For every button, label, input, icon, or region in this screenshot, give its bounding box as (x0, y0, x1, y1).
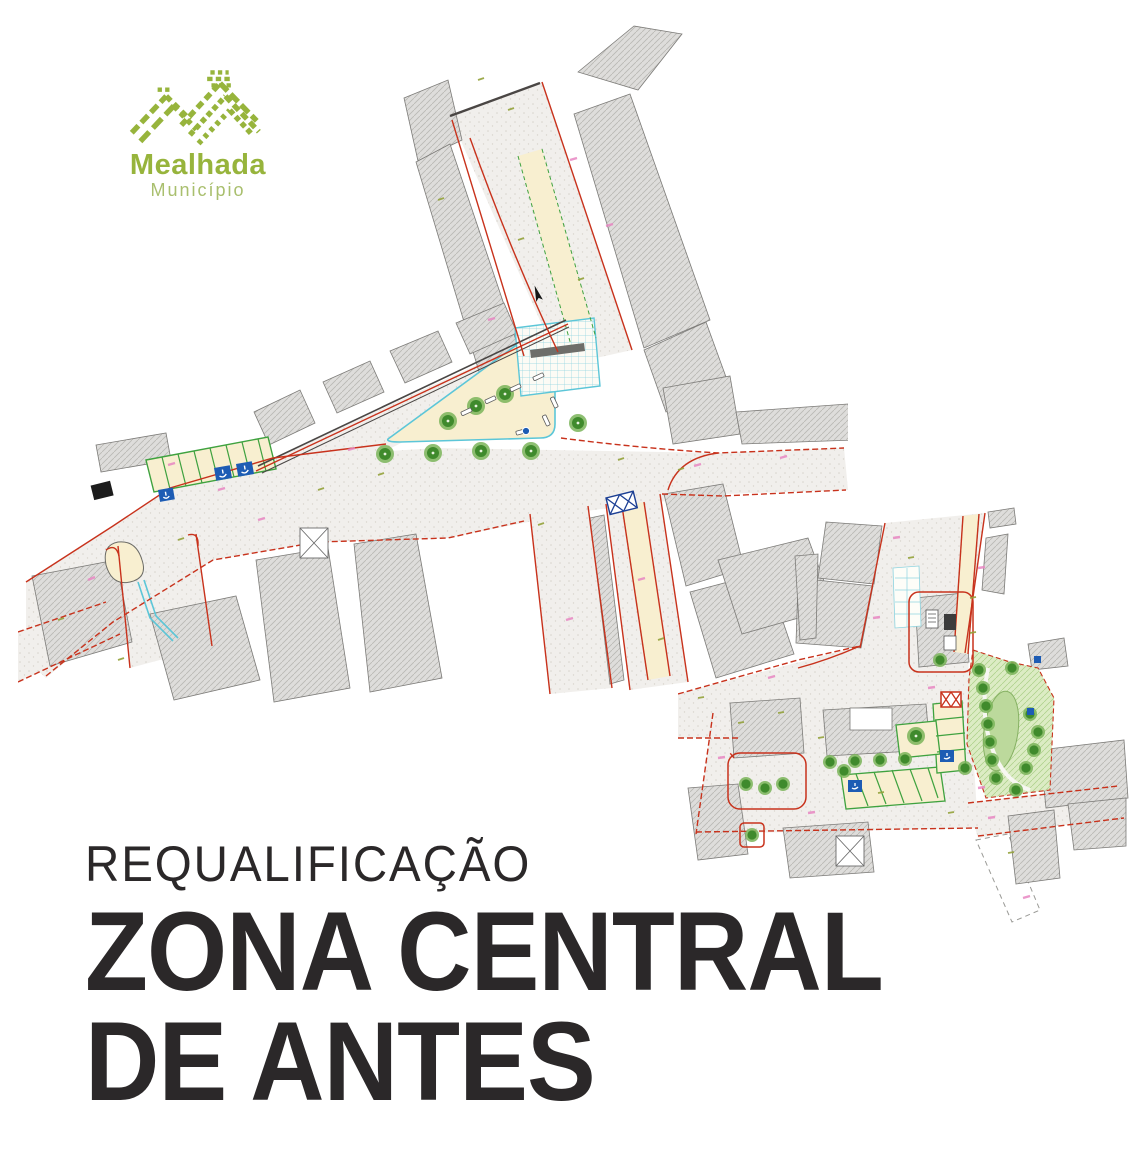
bus-shelter (91, 481, 114, 500)
park-layer (967, 650, 1054, 798)
accessible-parking-icon (848, 780, 862, 792)
survey-cross (836, 836, 864, 866)
fountain-marker (522, 427, 529, 434)
poster: Mealhada Município (0, 0, 1145, 1156)
accessible-parking-icon (214, 465, 232, 481)
accessible-parking-icon (940, 750, 954, 762)
kicker-text: REQUALIFICAÇÃO (85, 835, 531, 893)
accessible-parking-icon (158, 487, 175, 501)
poster-title-line2: DE ANTES (85, 1006, 595, 1118)
park-marker (1027, 708, 1034, 715)
accessible-parking-icon (236, 461, 254, 477)
crossing-red-icon (941, 692, 961, 707)
survey-cross (300, 528, 328, 558)
park-marker (1034, 656, 1041, 663)
poster-title-line1: ZONA CENTRAL (85, 896, 883, 1008)
